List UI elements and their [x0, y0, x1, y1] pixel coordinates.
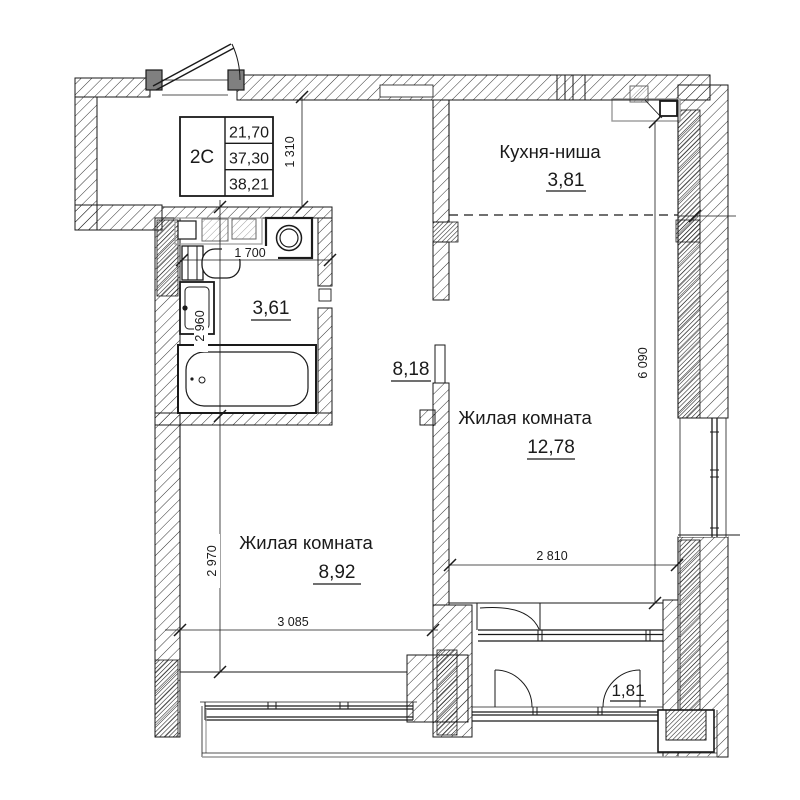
- walls: [75, 75, 728, 757]
- dim-text: 1 310: [283, 136, 297, 167]
- partition-opening-frame: [435, 345, 445, 383]
- dim-text: 2 810: [536, 549, 567, 563]
- dense-left-lower: [155, 660, 178, 737]
- dim-entry-depth: 1 310: [283, 91, 308, 213]
- wall-bath-bottom: [155, 413, 332, 425]
- vent-square: [178, 221, 196, 239]
- room-label-living-left: Жилая комната: [239, 532, 373, 553]
- unit-info-table: 2С 21,70 37,30 38,21: [180, 117, 273, 196]
- bathtub-faucet: [190, 377, 193, 380]
- room-label-living-right: Жилая комната: [458, 407, 592, 428]
- entrance-door: [146, 44, 244, 95]
- vent-duct-icon: [660, 101, 677, 116]
- dim-living-left-width: 3 085: [165, 615, 439, 636]
- toilet-tank: [182, 246, 203, 280]
- wall-entry-bottom-left: [75, 205, 162, 230]
- wall-entry-top-left: [75, 78, 150, 97]
- door-post-left: [146, 70, 162, 90]
- unit-area-row: 38,21: [229, 177, 269, 194]
- door-post-right: [228, 70, 244, 90]
- area-label-kitchen: 3,81: [548, 170, 585, 191]
- area-label-living-right: 12,78: [527, 437, 575, 458]
- balcony-door-swing-arc: [480, 607, 539, 629]
- dense-partition-block: [433, 222, 458, 242]
- dim-text: 6 090: [636, 347, 650, 378]
- right-wall-channel: [658, 710, 714, 752]
- dim-text: 1 700: [234, 246, 265, 260]
- unit-area-row: 37,30: [229, 151, 269, 168]
- wall-bath-top: [162, 207, 332, 218]
- dim-text: 2 970: [205, 545, 219, 576]
- dim-right-side-depth: 6 090: [636, 116, 661, 609]
- room-label-kitchen: Кухня-ниша: [499, 141, 601, 162]
- dim-living-right-width: 2 810: [444, 549, 683, 571]
- balcony-door-band: [477, 603, 663, 641]
- area-label-balcony: 1,81: [611, 681, 644, 700]
- wall-partition-mid: [433, 242, 449, 300]
- unit-type-label: 2С: [190, 147, 214, 168]
- window-right-wall: [678, 418, 740, 537]
- window-living-left: [200, 702, 417, 720]
- dim-text: 2 960: [193, 310, 207, 341]
- floor-plan-drawing: 2С 21,70 37,30 38,21: [0, 0, 800, 800]
- dense-right-strip: [680, 540, 700, 737]
- dense-right-upper-strip: [678, 110, 700, 418]
- wall-stub-living-left: [420, 410, 435, 425]
- sink-faucet: [182, 305, 187, 310]
- wall-partition-upper: [433, 100, 449, 222]
- wall-bath-right-lower: [318, 308, 332, 413]
- vent-square-hatched: [232, 219, 256, 239]
- area-label-bathroom: 3,61: [253, 298, 290, 319]
- vent-square-hatched: [202, 219, 228, 241]
- area-label-hall: 8,18: [393, 359, 430, 380]
- area-label-living-left: 8,92: [319, 562, 356, 583]
- top-wall-lintel: [380, 85, 433, 97]
- unit-area-row: 21,70: [229, 125, 269, 142]
- floor-plan-page: 2С 21,70 37,30 38,21: [0, 0, 800, 800]
- bath-wall-duct: [319, 289, 331, 301]
- dim-text: 3 085: [277, 615, 308, 629]
- dense-pier-center: [437, 650, 457, 735]
- door-leaf: [156, 48, 234, 90]
- wall-bath-right-upper: [318, 218, 332, 286]
